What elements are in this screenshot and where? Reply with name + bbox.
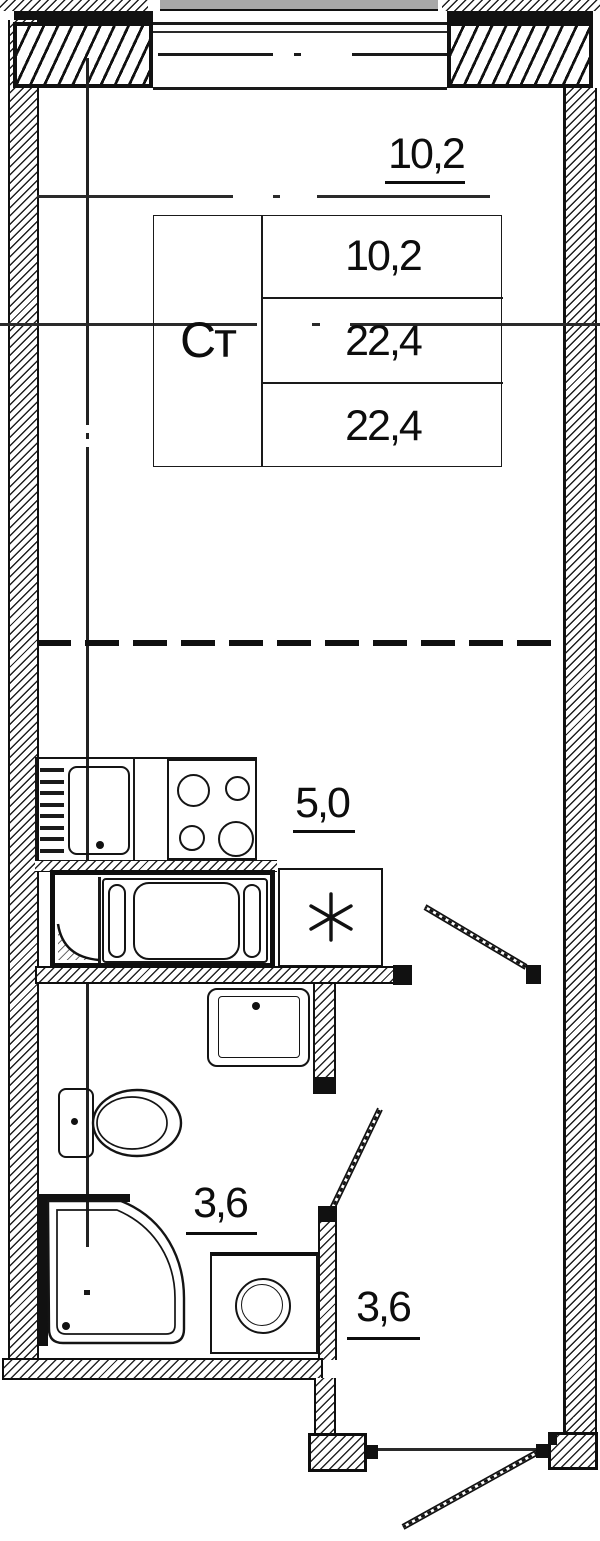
bathroom-door-leaf — [329, 1108, 382, 1212]
entry-door-leaf — [402, 1450, 539, 1529]
kitchen-door-leaf — [424, 905, 527, 969]
toilet-bowl — [93, 1090, 181, 1156]
plan-vector-overlay — [0, 0, 600, 1541]
floor-plan: 10,2 Ст 10,2 22,4 22,4 5,0 — [0, 0, 600, 1541]
shower-cabin — [48, 1201, 184, 1343]
fridge-asterisk-icon — [311, 894, 351, 940]
